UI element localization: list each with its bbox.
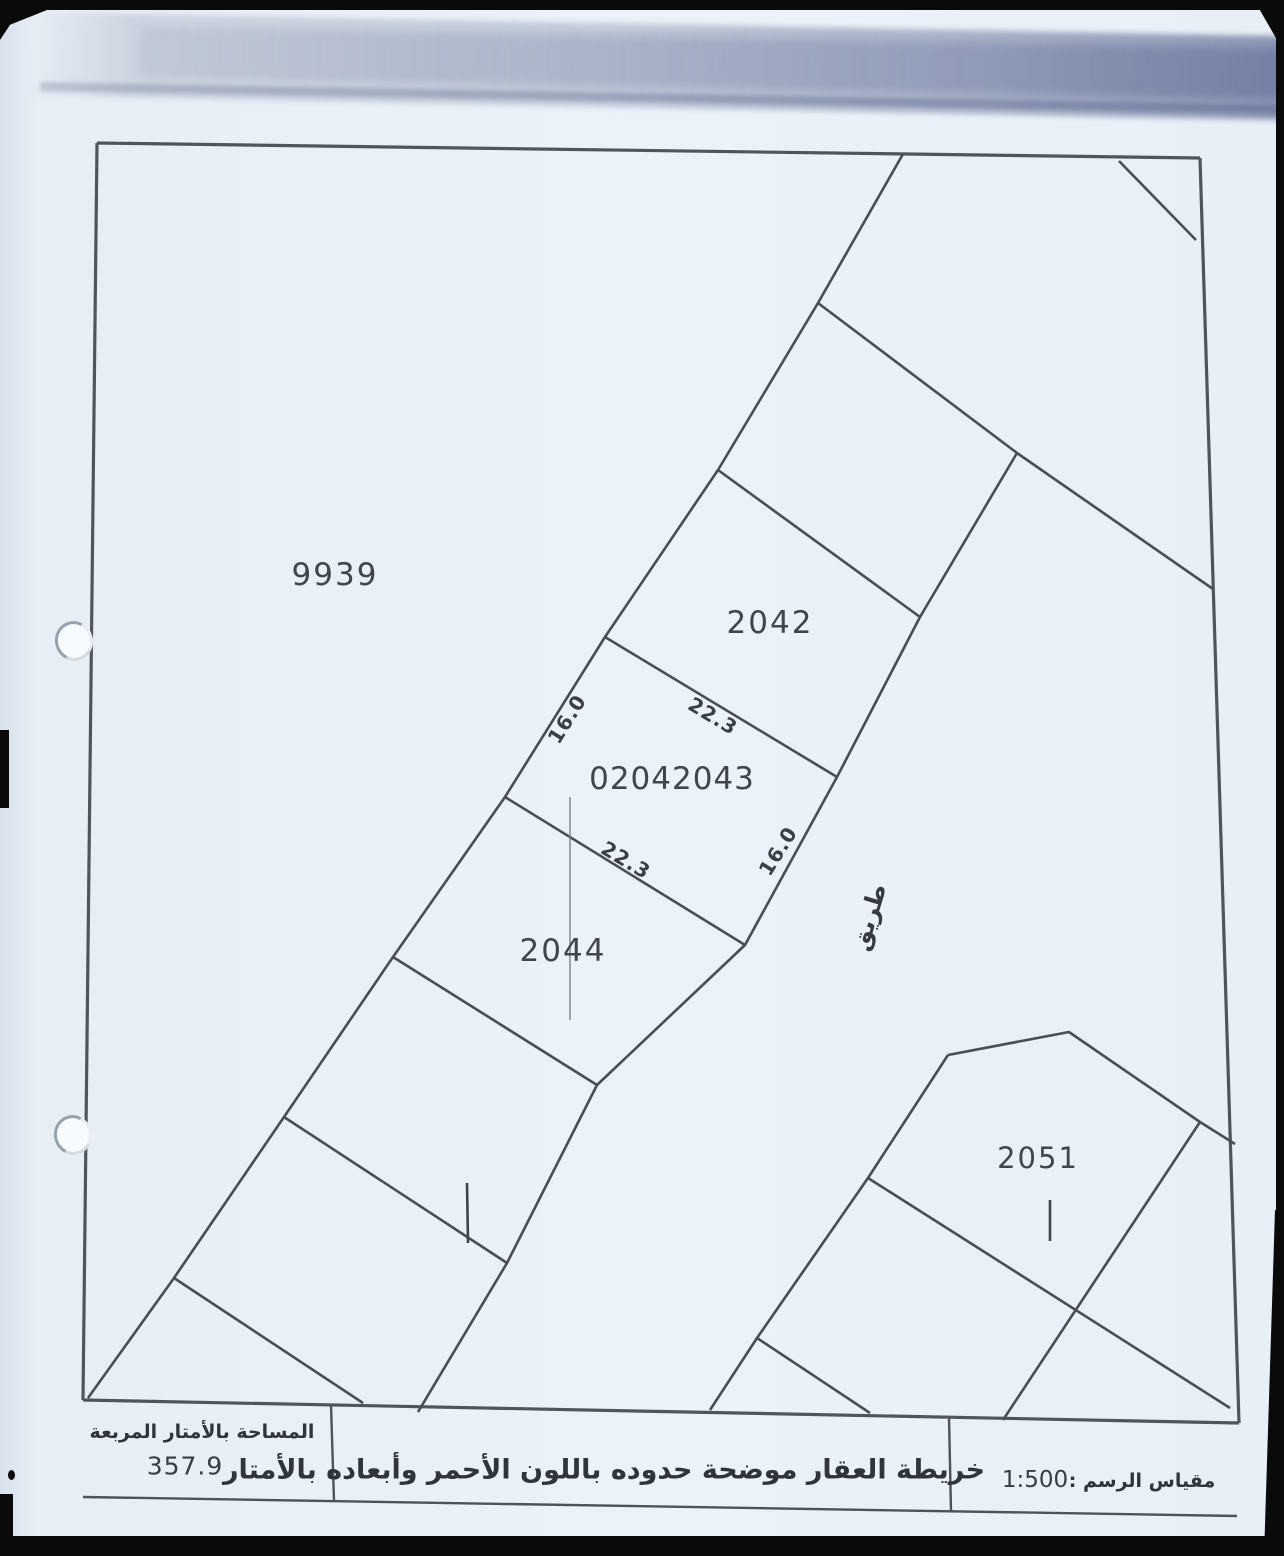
scale-label: مقياس الرسم : xyxy=(1069,1470,1215,1492)
scan-speck xyxy=(8,1470,15,1480)
cross-line-6 xyxy=(284,1117,507,1263)
cross-line-1 xyxy=(818,303,1017,453)
cross-line-7 xyxy=(174,1278,363,1403)
parcel-label-9939: 9939 xyxy=(292,557,379,593)
parcel-label-2042: 2042 xyxy=(727,605,814,641)
tick-mark-strip xyxy=(467,1183,468,1243)
map-border-top xyxy=(97,143,1200,158)
table-divider-area xyxy=(331,1405,334,1501)
block2051-division-3 xyxy=(757,1338,870,1413)
area-value: 357.9 xyxy=(147,1452,224,1481)
road-boundary xyxy=(1017,453,1213,589)
table-bottom-border xyxy=(83,1497,1237,1516)
map-border-right xyxy=(1200,158,1239,1423)
scan-edge-top xyxy=(0,0,1284,10)
parcel-label-2051: 2051 xyxy=(997,1141,1079,1175)
scan-edge-bottom xyxy=(0,1536,1284,1556)
map-title: خريطة العقار موضحة حدوده باللون الأحمر و… xyxy=(223,1455,985,1486)
parcel-label-02042043: 02042043 xyxy=(589,761,755,797)
scan-edge-bottom-left xyxy=(0,1494,13,1556)
block2051-left-edge xyxy=(710,1055,948,1410)
area-header-label: المساحة بالأمتار المربعة xyxy=(90,1421,315,1443)
scan-mark-left xyxy=(0,730,9,808)
scanned-cadastral-sheet: 9939 2042 02042043 2044 2051 16.0 22.3 2… xyxy=(0,0,1284,1556)
block2051-top-edge xyxy=(948,1032,1200,1122)
map-border-left xyxy=(83,143,97,1400)
map-border-bottom xyxy=(83,1400,1239,1423)
cross-line-2 xyxy=(718,470,920,617)
scale-value: 1:500 xyxy=(1002,1467,1068,1493)
cross-line-5 xyxy=(393,957,597,1085)
strip-left-edge xyxy=(88,154,903,1398)
corner-cut-topright xyxy=(1119,161,1196,240)
parcel-label-2044: 2044 xyxy=(520,933,607,969)
strip-right-edge xyxy=(418,453,1017,1412)
